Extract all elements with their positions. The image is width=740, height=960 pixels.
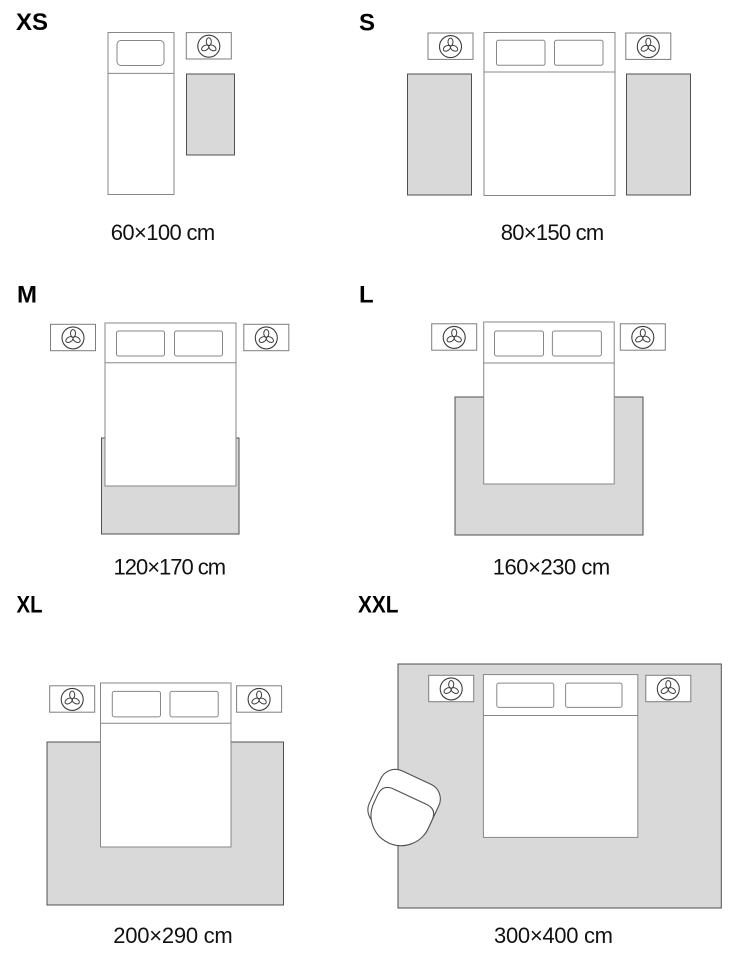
svg-text:XL: XL bbox=[17, 591, 43, 618]
svg-text:200×290 cm: 200×290 cm bbox=[113, 923, 233, 948]
svg-text:XXL: XXL bbox=[358, 592, 399, 619]
svg-text:120×170 cm: 120×170 cm bbox=[114, 554, 226, 579]
svg-text:M: M bbox=[17, 282, 37, 309]
svg-text:XS: XS bbox=[16, 9, 48, 36]
svg-text:S: S bbox=[359, 9, 375, 36]
svg-text:60×100 cm: 60×100 cm bbox=[111, 220, 216, 245]
svg-text:300×400 cm: 300×400 cm bbox=[494, 923, 613, 948]
svg-text:80×150 cm: 80×150 cm bbox=[501, 220, 605, 245]
svg-text:L: L bbox=[359, 282, 374, 309]
svg-text:160×230 cm: 160×230 cm bbox=[493, 554, 611, 579]
